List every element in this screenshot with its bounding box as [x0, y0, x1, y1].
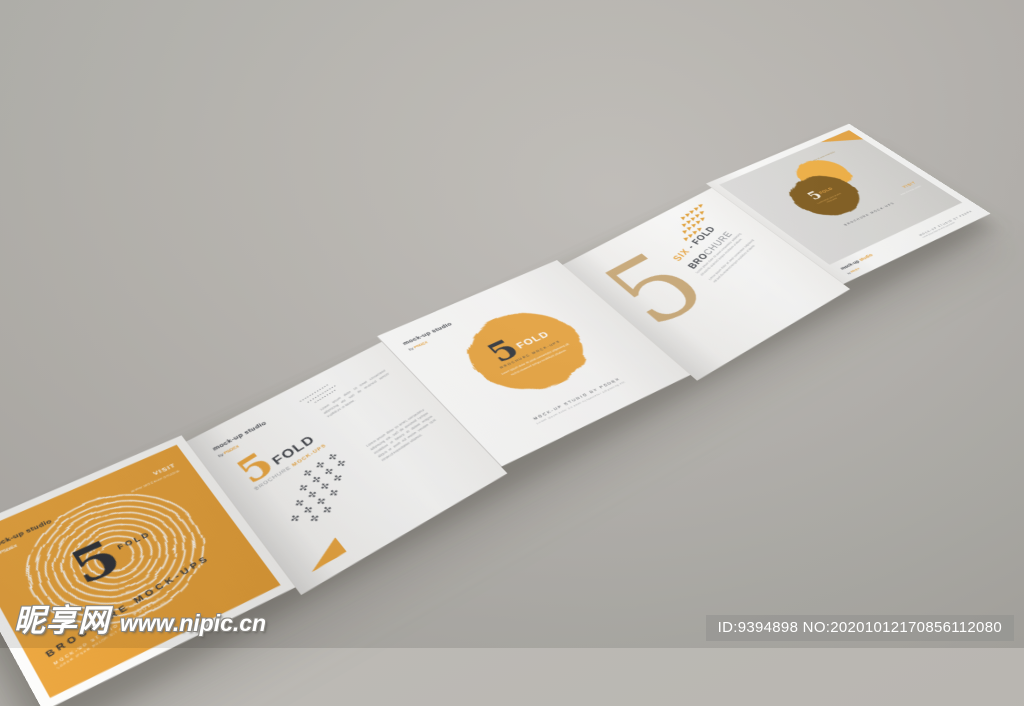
watermark-site-logo: 昵享网 [14, 595, 110, 640]
mockup-scene: mock-up studio by PSDEX VISIT WWW.MOCKUP… [0, 0, 1024, 648]
watermark-id-badge: ID:9394898 NO:20201012170856112080 [706, 615, 1014, 641]
stock-photo-page: { "colors": { "orange": "#e8a33c", "dark… [0, 0, 1024, 648]
watermark-site: 昵享网 www.nipic.cn [14, 595, 266, 640]
watermark-site-url: www.nipic.cn [120, 610, 266, 637]
orange-triangle-accent [300, 537, 347, 572]
panel2-paragraph-2: Lorem ipsum dolor sit amet, consectetur … [366, 408, 442, 462]
